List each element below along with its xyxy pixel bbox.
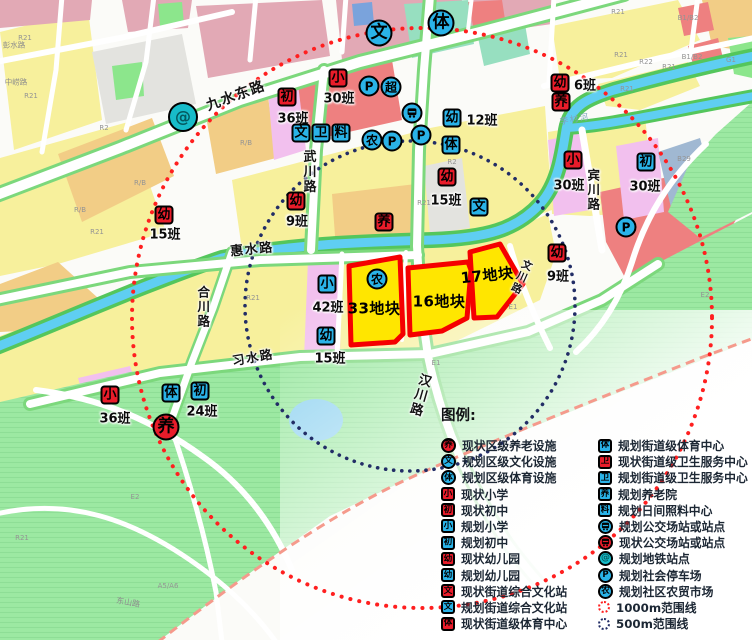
legend-item: 500m范围线 [598, 617, 748, 630]
legend-item: 小现状小学 [441, 488, 598, 501]
legend-icon-BUS [598, 535, 613, 550]
legend-item: 农规划社区农贸市场 [598, 585, 748, 598]
legend-label: 规划街道级卫生服务中心 [618, 469, 748, 486]
legend-right-column: 体规划街道级体育中心卫现状街道级卫生服务中心卫规划街道级卫生服务中心养规划养老院… [598, 439, 748, 630]
legend-icon-METRO: @ [598, 551, 613, 566]
legend-icon-养: 养 [441, 438, 456, 453]
legend-item: 文规划区级文化设施 [441, 455, 598, 468]
legend-label: 规划社会停车场 [619, 567, 702, 584]
legend: 图例: 养现状区级养老设施文规划区级文化设施体规划区级体育设施小现状小学初现状初… [441, 404, 752, 630]
legend-icon-文: 文 [441, 600, 455, 614]
legend-icon-BUS [598, 519, 613, 534]
legend-item: 体规划街道级体育中心 [598, 439, 748, 452]
legend-item: 养规划养老院 [598, 488, 748, 501]
legend-label: 现状街道综合文化站 [461, 583, 567, 600]
legend-label: 现状区级养老设施 [462, 437, 556, 454]
legend-icon-养: 养 [598, 487, 612, 501]
legend-icon-料: 料 [598, 503, 612, 517]
legend-label: 规划区级体育设施 [462, 469, 556, 486]
legend-icon-体: 体 [441, 617, 455, 631]
legend-icon-文: 文 [441, 454, 456, 469]
legend-icon-初: 初 [441, 503, 455, 517]
legend-item: 体现状街道级体育中心 [441, 617, 598, 630]
legend-item: 文规划街道综合文化站 [441, 601, 598, 614]
legend-label: 现状初中 [461, 502, 508, 519]
planning-map: R21R21R2R/BR/BR/BR21R2R21R21E2R21A5/A6R2… [0, 0, 752, 640]
legend-item: 料规划日间照料中心 [598, 504, 748, 517]
legend-item: 现状公交场站或站点 [598, 536, 748, 549]
legend-label: 规划街道级体育中心 [618, 437, 724, 454]
legend-item: 规划公交场站或站点 [598, 520, 748, 533]
legend-icon-卫: 卫 [598, 455, 612, 469]
legend-icon-体: 体 [441, 470, 456, 485]
legend-item: @规划地铁站点 [598, 552, 748, 565]
legend-icon-农: 农 [598, 584, 613, 599]
legend-item: 卫现状街道级卫生服务中心 [598, 455, 748, 468]
legend-icon-幼: 幼 [441, 552, 455, 566]
legend-item: P规划社会停车场 [598, 569, 748, 582]
legend-icon-小: 小 [441, 519, 455, 533]
legend-label: 现状幼儿园 [461, 550, 520, 567]
legend-icon-P: P [598, 568, 613, 583]
legend-item: 养现状区级养老设施 [441, 439, 598, 452]
legend-title: 图例: [441, 404, 752, 425]
legend-label: 1000m范围线 [616, 599, 697, 616]
legend-icon-体: 体 [598, 439, 612, 453]
legend-icon-幼: 幼 [441, 568, 455, 582]
legend-label: 规划区级文化设施 [462, 453, 556, 470]
legend-label: 规划幼儿园 [461, 567, 520, 584]
legend-icon-初: 初 [441, 536, 455, 550]
legend-item: 幼现状幼儿园 [441, 552, 598, 565]
legend-label: 规划社区农贸市场 [619, 583, 713, 600]
legend-item: 小规划小学 [441, 520, 598, 533]
legend-item: 文现状街道综合文化站 [441, 585, 598, 598]
legend-item: 初规划初中 [441, 536, 598, 549]
legend-label: 现状公交场站或站点 [619, 534, 725, 551]
legend-label: 规划街道综合文化站 [461, 599, 567, 616]
legend-icon-文: 文 [441, 584, 455, 598]
legend-label: 规划公交场站或站点 [619, 518, 725, 535]
legend-item: 幼规划幼儿园 [441, 569, 598, 582]
legend-label: 规划小学 [461, 518, 508, 535]
legend-icon-red1000 [598, 601, 610, 613]
legend-left-column: 养现状区级养老设施文规划区级文化设施体规划区级体育设施小现状小学初现状初中小规划… [441, 439, 598, 630]
legend-icon-小: 小 [441, 487, 455, 501]
legend-item: 1000m范围线 [598, 601, 748, 614]
legend-icon-卫: 卫 [598, 471, 612, 485]
legend-label: 规划日间照料中心 [618, 502, 712, 519]
legend-label: 500m范围线 [616, 615, 688, 632]
legend-item: 卫规划街道级卫生服务中心 [598, 471, 748, 484]
legend-item: 初现状初中 [441, 504, 598, 517]
legend-label: 现状街道级体育中心 [461, 615, 567, 632]
legend-label: 规划养老院 [618, 486, 677, 503]
legend-label: 规划地铁站点 [619, 550, 690, 567]
legend-item: 体规划区级体育设施 [441, 471, 598, 484]
legend-icon-navy500 [598, 618, 610, 630]
plot-33 [349, 257, 403, 345]
legend-label: 规划初中 [461, 534, 508, 551]
legend-label: 现状街道级卫生服务中心 [618, 453, 748, 470]
legend-label: 现状小学 [461, 486, 508, 503]
